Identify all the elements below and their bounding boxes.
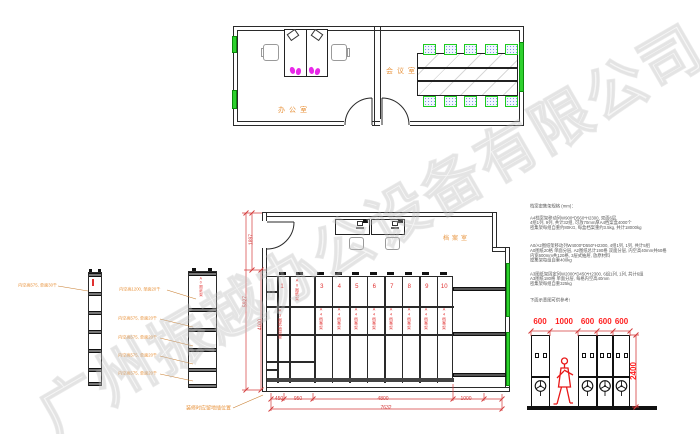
room-divider-wall xyxy=(374,27,381,125)
shelf-foot xyxy=(208,268,212,271)
archive-room-label: 档案室 xyxy=(443,236,470,242)
grid-line xyxy=(314,334,454,336)
grid-line xyxy=(267,369,277,371)
conference-table xyxy=(417,53,518,96)
door-gap xyxy=(380,119,410,127)
grid-line xyxy=(289,277,291,383)
shelf-board xyxy=(89,311,101,315)
shelf-b-mark: A0图纸架 xyxy=(199,277,203,297)
unit-label: A4档案架 xyxy=(319,307,323,330)
callout-shelf-a: 内空高575, 单面30千 xyxy=(18,283,57,287)
callout-shelf-b5: 内空高575, 单面20千 xyxy=(118,371,157,375)
shelf-foot xyxy=(296,272,303,275)
pc-tower-icon xyxy=(398,219,403,223)
chair-arm xyxy=(261,48,264,57)
archive-wall-notch-v xyxy=(492,212,497,252)
shelf-board xyxy=(89,349,101,353)
grid-line xyxy=(419,277,421,383)
shelf-foot xyxy=(422,272,429,275)
grid-line xyxy=(437,277,439,383)
grid-line xyxy=(367,277,369,383)
unit-number: 3 xyxy=(313,284,331,290)
spec-reference-note: 下面示意图可供参考! xyxy=(530,298,700,303)
unit-label: A0图纸架 xyxy=(295,278,299,301)
shelf-foot xyxy=(317,272,324,275)
shelf-foot xyxy=(89,269,92,272)
shelving-rail xyxy=(453,373,506,377)
shelf-board xyxy=(189,272,216,276)
dim-4000: 4000 xyxy=(259,313,264,337)
office-chair xyxy=(263,44,279,61)
meeting-chair xyxy=(423,96,436,107)
callout-shelf-b4: 内空高575, 单面20千 xyxy=(118,353,157,357)
pc-tower-icon xyxy=(363,219,368,223)
grid-line xyxy=(267,291,277,293)
meeting-room-label: 会议室 xyxy=(386,68,419,75)
window-strip xyxy=(519,42,524,92)
meeting-chair xyxy=(505,96,518,107)
shelf-board xyxy=(189,348,216,352)
unit-label: A4档案架 xyxy=(372,307,376,330)
shelf-foot xyxy=(335,272,342,275)
meeting-chair xyxy=(444,44,457,55)
archive-wall-bottom xyxy=(262,387,510,392)
window-strip xyxy=(232,36,237,53)
red-mark xyxy=(92,279,94,286)
unit-label: A4档案架 xyxy=(442,307,446,330)
shelf-foot xyxy=(370,272,377,275)
archive-chair xyxy=(349,237,364,250)
shelf-foot xyxy=(352,272,359,275)
table-line xyxy=(418,67,517,69)
door-gap xyxy=(261,221,268,248)
shelf-foot xyxy=(98,269,101,272)
dim-1000: 1000 xyxy=(454,397,478,402)
window-strip xyxy=(232,90,237,109)
computer-stand xyxy=(391,227,399,229)
shelf-foot xyxy=(405,272,412,275)
callout-shelf-b2: 内空高575, 单面20千 xyxy=(118,316,157,320)
meeting-chair xyxy=(444,96,457,107)
grid-line xyxy=(267,361,314,363)
spec-line: 密集架每组自重325kg xyxy=(530,281,700,286)
spec-text-block: 档案密集架规格 (mm)： A4档案架移动列W900*D560*H2300, 双… xyxy=(530,204,700,401)
shelf-board xyxy=(89,292,101,296)
callout-shelf-b3: 内空高575, 单面20千 xyxy=(118,335,157,339)
table-line xyxy=(418,80,517,82)
unit-label: A4档案架 xyxy=(337,307,341,330)
shelving-rail xyxy=(453,332,506,336)
shelf-board xyxy=(189,384,216,388)
unit-number: 7 xyxy=(383,284,401,290)
unit-number: 5 xyxy=(348,284,366,290)
dim-4800: 4800 xyxy=(371,397,395,402)
meeting-chair xyxy=(423,44,436,55)
archive-wall-top xyxy=(262,212,497,217)
window-strip xyxy=(506,263,510,317)
shelf-elevation-a xyxy=(88,272,102,386)
grid-line xyxy=(267,334,314,336)
window-strip xyxy=(506,332,510,386)
shelf-board xyxy=(189,308,216,312)
unit-number: 4 xyxy=(331,284,349,290)
chair-arm xyxy=(347,48,350,57)
grid-line xyxy=(332,277,334,383)
meeting-chair xyxy=(464,96,477,107)
unit-label: A4档案架 xyxy=(407,307,411,330)
unit-number: 1 xyxy=(276,284,288,290)
shelf-foot xyxy=(440,272,447,275)
floor-rail-base xyxy=(527,406,657,410)
door-gap xyxy=(344,119,372,127)
shelf-board xyxy=(89,368,101,372)
grid-line xyxy=(314,277,316,383)
dim-total-7632: 7632 xyxy=(374,406,398,411)
shelf-foot xyxy=(387,272,394,275)
shelf-board xyxy=(89,330,101,334)
side-dim-600: 600 xyxy=(612,318,632,326)
grid-line xyxy=(402,277,404,383)
shelf-board xyxy=(89,382,101,386)
spec-line: 密集架每组自重约80KG, 每盒档案重约3.5kg, 共计18000kg xyxy=(530,225,700,230)
grid-line xyxy=(349,277,351,383)
spec-line: 密集架每组自重400kg xyxy=(530,258,700,263)
side-dim-1000: 1000 xyxy=(554,318,574,326)
office-room-label: 办公室 xyxy=(278,107,311,114)
dim-1897: 1897 xyxy=(250,228,255,252)
grid-line xyxy=(384,277,386,383)
unit-label: A4档案架 xyxy=(389,307,393,330)
callout-shelf-b1: 内空高1200, 单面20千 xyxy=(119,287,160,291)
unit-number: 8 xyxy=(401,284,419,290)
unit-number: 10 xyxy=(436,284,454,290)
computer-stand xyxy=(356,227,364,229)
office-chair xyxy=(331,44,347,61)
shelf-board xyxy=(89,273,101,277)
shelving-rail xyxy=(453,287,506,291)
shelf-elevation-b xyxy=(188,271,217,388)
spec-title: 档案密集架规格 (mm)： xyxy=(530,204,700,209)
side-dim-600: 600 xyxy=(530,318,550,326)
meeting-chair xyxy=(485,96,498,107)
meeting-chair xyxy=(505,44,518,55)
unit-number: 9 xyxy=(418,284,436,290)
grid-line xyxy=(267,306,314,308)
dim-5927: 5927 xyxy=(244,290,249,314)
shelf-foot xyxy=(192,268,196,271)
unit-number: 6 xyxy=(366,284,384,290)
meeting-chair xyxy=(485,44,498,55)
unit-label: A4档案架 xyxy=(424,307,428,330)
meeting-chair xyxy=(464,44,477,55)
floor-plan-drawing: 广州振越办公设备有限公司 办公室 会议室 xyxy=(0,0,700,434)
grid-line xyxy=(314,306,454,308)
shelf-board xyxy=(189,328,216,332)
shelf-foot xyxy=(279,272,286,275)
shelf-board xyxy=(189,368,216,372)
side-dim-2400: 2400 xyxy=(630,359,638,383)
archive-chair xyxy=(385,237,400,250)
floor-socket-note: 装修时应留地插位置 xyxy=(186,406,231,411)
unit-label: A4档案架 xyxy=(354,307,358,330)
dim-950: 950 xyxy=(286,397,310,402)
shelf-base-band xyxy=(267,378,454,382)
unit-label: A3图纸抽屉架 xyxy=(278,308,282,340)
